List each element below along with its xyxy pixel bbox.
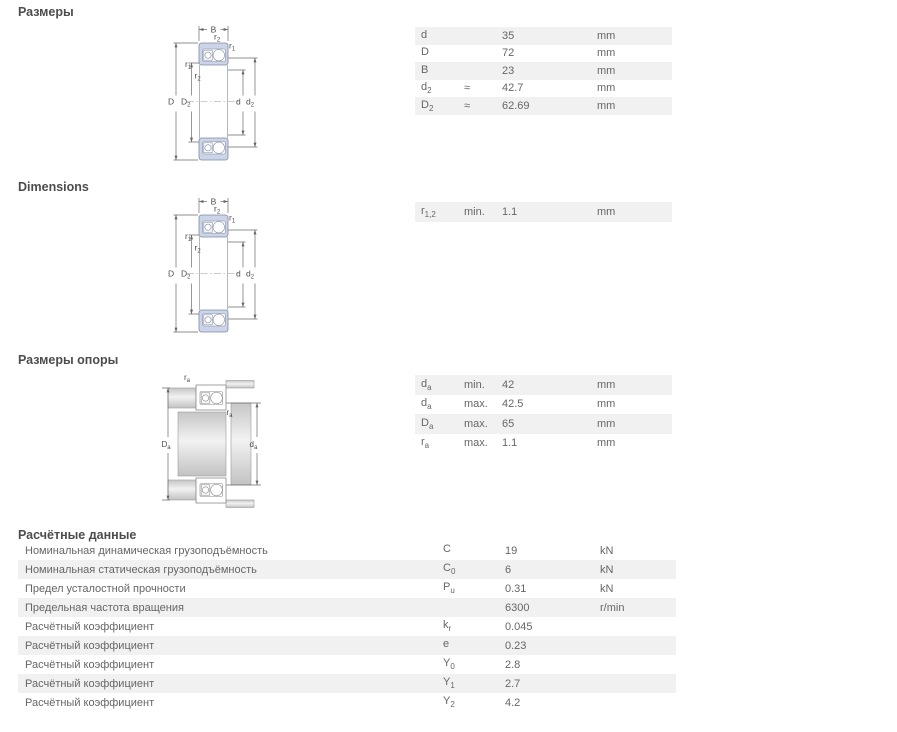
symbol-cell: C	[443, 543, 505, 557]
dim-label-d: d	[236, 269, 241, 279]
value-cell: 6	[505, 564, 600, 576]
value-cell: 42	[502, 379, 597, 391]
table-row: Номинальная статическая грузоподъёмность…	[18, 560, 676, 579]
parameter-label: Предельная частота вращения	[18, 602, 443, 614]
value-cell: 1.1	[502, 437, 597, 449]
dim-label-r1: r1	[229, 213, 236, 225]
table-row: Расчётный коэффициент kr 0.045	[18, 617, 676, 636]
bearing-datasheet-page: Размеры	[0, 0, 897, 732]
qualifier-cell: ≈	[464, 100, 502, 112]
unit-cell: kN	[600, 564, 676, 576]
unit-cell: mm	[597, 65, 672, 77]
parameter-label: Расчётный коэффициент	[18, 659, 443, 671]
unit-cell: mm	[597, 206, 672, 218]
value-cell: 19	[505, 545, 600, 557]
value-cell: 0.045	[505, 621, 600, 633]
symbol-cell: d2	[415, 81, 464, 95]
table-row: D2 ≈ 62.69 mm	[415, 97, 672, 115]
table-row: Расчётный коэффициент Y2 4.2	[18, 693, 676, 712]
value-cell: 1.1	[502, 206, 597, 218]
symbol-cell: Y2	[443, 695, 505, 709]
table-row: Расчётный коэффициент e 0.23	[18, 636, 676, 655]
abutment-mounting-diagram: ra ra Da da	[160, 367, 265, 517]
section-title-calculation: Расчётные данные	[18, 528, 136, 542]
value-cell: 42.7	[502, 82, 597, 94]
dim-label-r2: r2	[195, 71, 202, 83]
dim-label-r1: r1	[185, 59, 192, 71]
value-cell: 35	[502, 30, 597, 42]
symbol-cell: da	[415, 378, 464, 392]
section-title-abutment: Размеры опоры	[18, 353, 118, 367]
dim-label-Da: Da	[162, 440, 172, 451]
symbol-cell: Da	[415, 417, 464, 431]
parameter-label: Расчётный коэффициент	[18, 621, 443, 633]
section-title-dimensions-ru: Размеры	[18, 5, 74, 19]
value-cell: 62.69	[502, 100, 597, 112]
value-cell: 0.23	[505, 640, 600, 652]
table-row: Номинальная динамическая грузоподъёмност…	[18, 541, 676, 560]
qualifier-cell: min.	[464, 379, 502, 391]
symbol-cell: D2	[415, 99, 464, 113]
value-cell: 72	[502, 47, 597, 59]
value-cell: 4.2	[505, 697, 600, 709]
unit-cell: mm	[597, 398, 672, 410]
dim-label-r1: r1	[185, 231, 192, 243]
table-row: Предельная частота вращения 6300 r/min	[18, 598, 676, 617]
dim-label-d: d	[236, 97, 241, 107]
value-cell: 65	[502, 418, 597, 430]
unit-cell: kN	[600, 583, 676, 595]
table-row: r1,2 min. 1.1 mm	[415, 202, 672, 222]
unit-cell: mm	[597, 100, 672, 112]
bearing-cross-section-diagram: B r2 r1 r1 r2 D D2 d d2	[160, 22, 260, 170]
abutment-table: da min. 42 mm da max. 42.5 mm Da max. 65…	[415, 375, 672, 453]
dim-label-D: D	[168, 97, 174, 107]
parameter-label: Предел усталостной прочности	[18, 583, 443, 595]
unit-cell: mm	[597, 47, 672, 59]
parameter-label: Номинальная динамическая грузоподъёмност…	[18, 545, 443, 557]
dim-label-r2: r2	[195, 243, 202, 255]
symbol-cell: d	[415, 29, 464, 43]
dim-label-r2: r2	[214, 204, 221, 216]
symbol-cell: Y1	[443, 676, 505, 690]
unit-cell: mm	[597, 82, 672, 94]
unit-cell: mm	[597, 437, 672, 449]
value-cell: 2.8	[505, 659, 600, 671]
section-title-dimensions-en: Dimensions	[18, 180, 89, 194]
symbol-cell: ra	[415, 436, 464, 450]
table-row: Da max. 65 mm	[415, 414, 672, 434]
unit-cell: r/min	[600, 602, 676, 614]
dim-label-D2: D2	[181, 97, 191, 109]
dim-label-r2: r2	[214, 32, 221, 44]
unit-cell: mm	[597, 30, 672, 42]
unit-cell: mm	[597, 418, 672, 430]
qualifier-cell: ≈	[464, 82, 502, 94]
dim-label-D: D	[168, 269, 174, 279]
dim-label-ra: ra	[184, 373, 191, 384]
qualifier-cell: max.	[464, 437, 502, 449]
symbol-cell: e	[443, 638, 505, 652]
unit-cell: mm	[597, 379, 672, 391]
table-row: D 72 mm	[415, 45, 672, 63]
dim-label-r1: r1	[229, 41, 236, 53]
table-row: Расчётный коэффициент Y1 2.7	[18, 674, 676, 693]
value-cell: 2.7	[505, 678, 600, 690]
symbol-cell: Y0	[443, 657, 505, 671]
symbol-cell: C0	[443, 562, 505, 576]
value-cell: 42.5	[502, 398, 597, 410]
calculation-data-table: Номинальная динамическая грузоподъёмност…	[18, 541, 676, 712]
bearing-cross-section-diagram: B r2 r1 r1 r2 D D2 d d2	[160, 194, 260, 342]
unit-cell: kN	[600, 545, 676, 557]
parameter-label: Расчётный коэффициент	[18, 697, 443, 709]
value-cell: 6300	[505, 602, 600, 614]
qualifier-cell: max.	[464, 398, 502, 410]
value-cell: 23	[502, 65, 597, 77]
table-row: d 35 mm	[415, 27, 672, 45]
symbol-cell: Pu	[443, 581, 505, 595]
fillet-table: r1,2 min. 1.1 mm	[415, 202, 672, 222]
table-row: Расчётный коэффициент Y0 2.8	[18, 655, 676, 674]
parameter-label: Номинальная статическая грузоподъёмность	[18, 564, 443, 576]
table-row: d2 ≈ 42.7 mm	[415, 80, 672, 98]
qualifier-cell: min.	[464, 206, 502, 218]
symbol-cell: r1,2	[415, 205, 464, 219]
symbol-cell: kr	[443, 619, 505, 633]
qualifier-cell: max.	[464, 418, 502, 430]
table-row: da min. 42 mm	[415, 375, 672, 395]
parameter-label: Расчётный коэффициент	[18, 678, 443, 690]
symbol-cell: B	[415, 64, 464, 78]
dimensions-table: d 35 mm D 72 mm B 23 mm d2 ≈ 42.7 mm D2 …	[415, 27, 672, 115]
table-row: ra max. 1.1 mm	[415, 434, 672, 454]
symbol-cell: da	[415, 397, 464, 411]
dim-label-D2: D2	[181, 269, 191, 281]
dim-label-d2: d2	[246, 97, 255, 109]
dim-label-d2: d2	[246, 269, 255, 281]
table-row: B 23 mm	[415, 62, 672, 80]
table-row: Предел усталостной прочности Pu 0.31 kN	[18, 579, 676, 598]
value-cell: 0.31	[505, 583, 600, 595]
symbol-cell: D	[415, 46, 464, 60]
parameter-label: Расчётный коэффициент	[18, 640, 443, 652]
table-row: da max. 42.5 mm	[415, 395, 672, 415]
